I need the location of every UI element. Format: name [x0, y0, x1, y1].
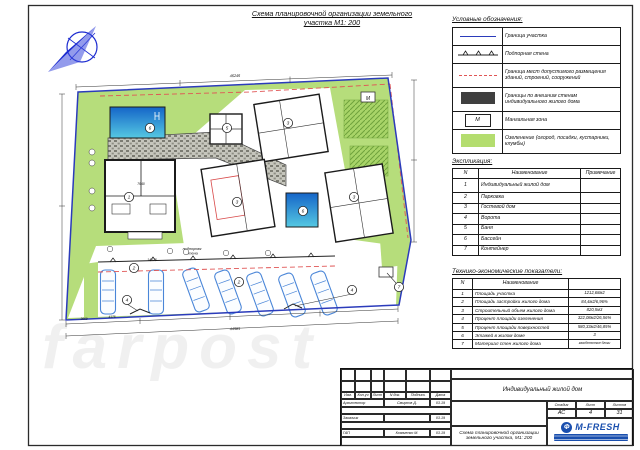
tech-title: Технико-экономические показатели:: [452, 268, 622, 275]
explication-title: Экспликация:: [452, 158, 622, 165]
tb-sheet-value: 4: [576, 409, 605, 418]
row-num: 7: [453, 340, 473, 348]
row-name: Баня: [479, 224, 581, 235]
legend-label: Границы по внешним стенам индивидуальног…: [503, 88, 621, 112]
tb-name-architect: Смирнов Д.: [384, 399, 430, 407]
tb-col-izm: Изм.: [341, 392, 355, 400]
row-name: Материал стен жилого дома: [473, 340, 569, 348]
col-header: Наименование: [473, 279, 569, 290]
row-num: 2: [453, 298, 473, 306]
tb-role-customer: Заказчик: [341, 414, 384, 422]
row-num: 6: [453, 235, 479, 246]
svg-text:3: 3: [236, 200, 239, 206]
row-name: Индивидуальный жилой дом: [479, 179, 581, 193]
green-strip-left: [84, 262, 98, 320]
svg-text:6: 6: [302, 209, 305, 215]
svg-text:46246: 46246: [230, 74, 242, 78]
tb-doc-title: Схема планировочной организации земельно…: [451, 426, 547, 446]
svg-text:2: 2: [132, 266, 136, 272]
tb-date-architect: 03.19: [430, 399, 451, 407]
row-name: Бассейн: [479, 235, 581, 246]
legend-label: Подпорная стена: [503, 46, 621, 64]
tb-project-name: Индивидуальный жилой дом: [451, 379, 634, 401]
tb-logo-cell: Ф M-FRESH: [547, 418, 634, 446]
svg-text:3669: 3669: [80, 317, 87, 321]
tb-col-ndok: N док.: [384, 392, 406, 400]
greenery-icon: [461, 134, 495, 147]
tb-name-gap: Коваченко М.: [384, 429, 430, 437]
tb-date-gap: 03.19: [430, 429, 451, 437]
row-value: газобетонные блоки: [569, 340, 621, 348]
row-num: 3: [453, 203, 479, 214]
building-guest-top: [254, 94, 328, 162]
row-num: 5: [453, 224, 479, 235]
tb-doc-title-line2: земельного участка, М1: 200: [466, 436, 532, 441]
row-name: Площадь участка: [473, 290, 569, 298]
row-name: Парковка: [479, 193, 581, 204]
col-header: Наименование: [479, 169, 581, 179]
legend-panel: Условные обозначения: Граница участка По…: [452, 16, 622, 154]
svg-text:14025: 14025: [147, 258, 157, 262]
tb-sheets-label: Листов: [605, 401, 634, 409]
tb-name-customer: [384, 414, 430, 422]
tb-stage-label: Стадия: [547, 401, 576, 409]
row-name: Контейнер: [479, 245, 581, 256]
legend-label: Мангальная зона: [503, 112, 621, 130]
site-boundary-line-icon: [460, 36, 496, 37]
row-num: 5: [453, 323, 473, 331]
row-name: Процент площади поверхностей: [473, 323, 569, 331]
row-num: 1: [453, 290, 473, 298]
svg-text:4: 4: [351, 288, 354, 294]
north-arrow-icon: [48, 26, 97, 72]
mfresh-logo-icon: Ф: [561, 422, 572, 433]
tb-col-list: Лист: [371, 392, 384, 400]
row-num: 1: [453, 179, 479, 193]
mfresh-logo-text: M-FRESH: [575, 423, 620, 433]
tb-sheet-label: Лист: [576, 401, 605, 409]
mangal-zone-icon: М: [465, 114, 491, 127]
tb-sheets-value: 31: [605, 409, 634, 418]
tb-col-data: Дата: [430, 392, 451, 400]
tb-col-koluch: Кол.уч: [355, 392, 371, 400]
house-walls-icon: [461, 92, 495, 104]
row-name: Площадь застройки жилого дома: [473, 298, 569, 306]
row-value: 322,08м2/26,56%: [569, 315, 621, 323]
svg-text:4: 4: [126, 298, 129, 304]
green-patch-right: [380, 237, 407, 268]
tb-col-podpis: Подпись: [406, 392, 430, 400]
drawing-sheet: farpost: [0, 0, 640, 450]
legend-label: Озеленение (огород, посадки, кустарники,…: [503, 130, 621, 154]
row-name: Ворота: [479, 214, 581, 225]
legend-label: Граница мест допустимого размещения здан…: [503, 64, 621, 88]
drawing-title-line2: участка М1: 200: [304, 18, 360, 27]
row-value: 3: [569, 331, 621, 339]
drawing-title: Схема планировочной организации земельно…: [213, 9, 451, 27]
tb-stage-value: АС: [547, 409, 576, 418]
col-header: N: [453, 169, 479, 179]
row-name: Строительный объем жилого дома: [473, 306, 569, 314]
col-header: N: [453, 279, 473, 290]
svg-text:3: 3: [353, 195, 356, 201]
row-value: 580,33м2/46,85%: [569, 323, 621, 331]
row-value: 84,4м2/6,96%: [569, 298, 621, 306]
row-value: 1212,68м2: [569, 290, 621, 298]
row-num: 3: [453, 306, 473, 314]
building-guest-right: [325, 164, 393, 242]
legend-table: Граница участка Подпорная стена Граница …: [452, 27, 621, 154]
svg-text:4175: 4175: [108, 315, 115, 319]
legend-label: Граница участка: [503, 28, 621, 46]
tb-role-gap: ГАП: [341, 429, 384, 437]
tb-date-customer: 03.19: [430, 414, 451, 422]
svg-text:44585: 44585: [230, 327, 242, 331]
svg-text:1: 1: [128, 195, 131, 201]
row-num: 4: [453, 315, 473, 323]
svg-text:5: 5: [226, 126, 229, 132]
legend-title: Условные обозначения:: [452, 16, 622, 23]
row-name: Гостевой дом: [479, 203, 581, 214]
garden-hatch-1: [344, 100, 388, 138]
svg-text:3: 3: [287, 121, 290, 127]
svg-text:2: 2: [237, 280, 241, 286]
building-main-house: [105, 160, 175, 239]
tb-role-architect: Архитектор: [341, 399, 384, 407]
col-header: Примечание: [581, 169, 621, 179]
explication-panel: Экспликация: N Наименование Примечание 1…: [452, 158, 622, 256]
svg-text:6: 6: [149, 126, 152, 132]
mangal-zone-box: М: [361, 92, 375, 102]
title-block: Изм. Кол.уч Лист N док. Подпись Дата Арх…: [340, 368, 633, 446]
row-num: 7: [453, 245, 479, 256]
row-name: Этажей в жилом доме: [473, 331, 569, 339]
row-num: 6: [453, 331, 473, 339]
retaining-wall-line-icon: [458, 49, 498, 57]
row-name: Процент площади озеленения: [473, 315, 569, 323]
mfresh-logo-address-bar: [554, 434, 628, 441]
tech-table: N Наименование 1Площадь участка1212,68м2…: [452, 278, 621, 349]
drawing-title-line1: Схема планировочной организации земельно…: [252, 9, 412, 18]
pool-main: [110, 107, 165, 138]
svg-text:7: 7: [398, 285, 401, 291]
row-num: 2: [453, 193, 479, 204]
explication-table: N Наименование Примечание 1Индивидуальны…: [452, 168, 621, 256]
svg-text:7640: 7640: [137, 182, 145, 186]
setback-line-icon: [459, 75, 497, 76]
row-value: 820,5м3: [569, 306, 621, 314]
tech-indicators-panel: Технико-экономические показатели: N Наим…: [452, 268, 622, 349]
container-box: [379, 267, 393, 277]
row-num: 4: [453, 214, 479, 225]
